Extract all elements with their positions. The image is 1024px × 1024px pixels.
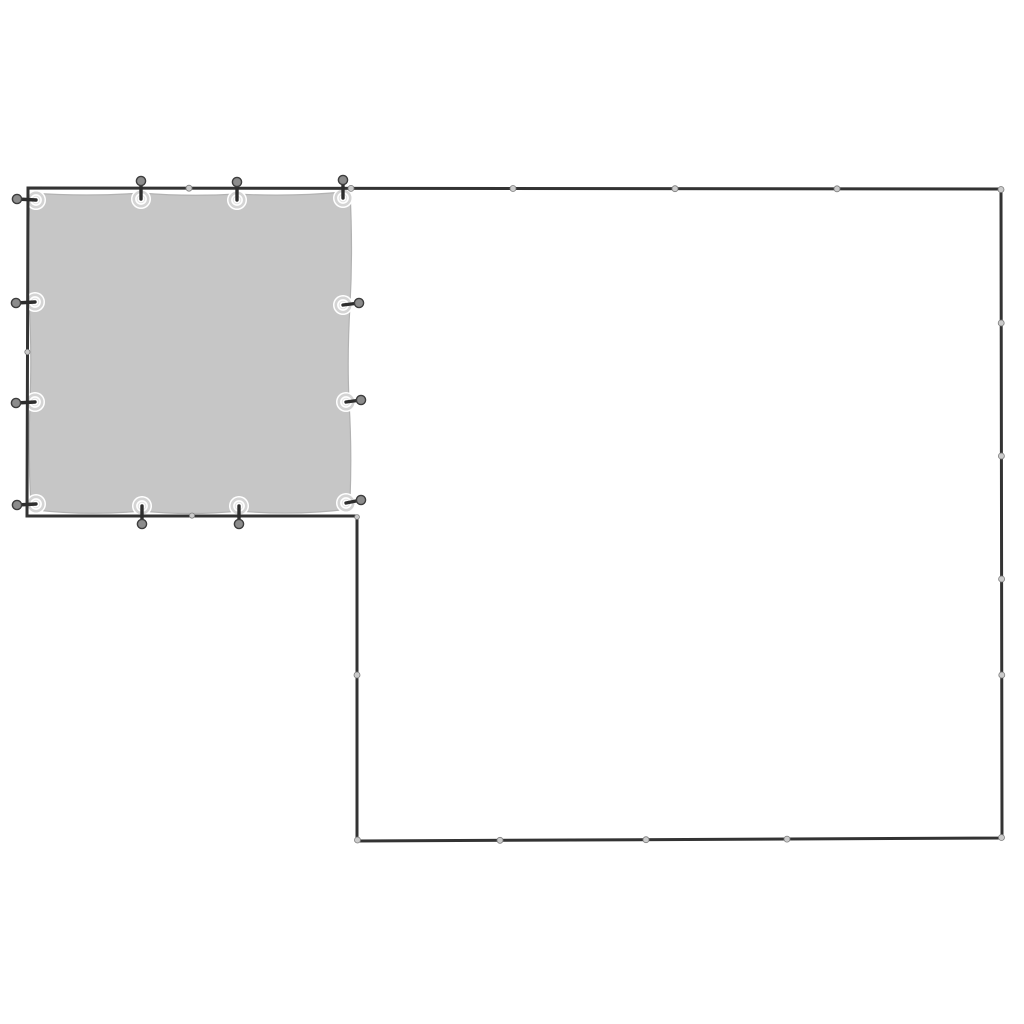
tarp-frame-illustration [0,0,1024,1024]
pole-joint-bead [834,186,840,192]
pole-joint-bead [999,672,1005,678]
pole-joint-bead [998,187,1004,193]
attachment-knob [234,519,243,528]
attachment-knob [136,176,145,185]
pole-joint-bead [998,453,1004,459]
pole-joint-bead [999,576,1005,582]
attachment-knob [11,398,20,407]
pole-joint-bead [497,837,503,843]
attachment-knob [338,175,347,184]
attachment-knob [11,298,20,307]
pole-joint-bead [672,186,678,192]
pole-joint-bead [348,185,354,191]
pole-joint-bead [643,837,649,843]
attachment-knob [12,500,21,509]
pole-joint-bead [998,320,1004,326]
pole-joint-bead [355,837,361,843]
pole-joint-bead [25,349,30,354]
attachment-knob [354,298,363,307]
attachment-knob [137,519,146,528]
pole-joint-bead [999,835,1005,841]
pole-joint-bead [510,186,516,192]
attachment-knob [356,395,365,404]
pole-joint-bead [186,185,192,191]
tarp-sheet [28,192,351,514]
pole-joint-bead [355,515,360,520]
pole-joint-bead [189,513,194,518]
product-photo [0,0,1024,1024]
attachment-knob [232,177,241,186]
pole-joint-bead [354,672,360,678]
attachment-knob [12,194,21,203]
attachment-knob [356,495,365,504]
pole-joint-bead [784,836,790,842]
